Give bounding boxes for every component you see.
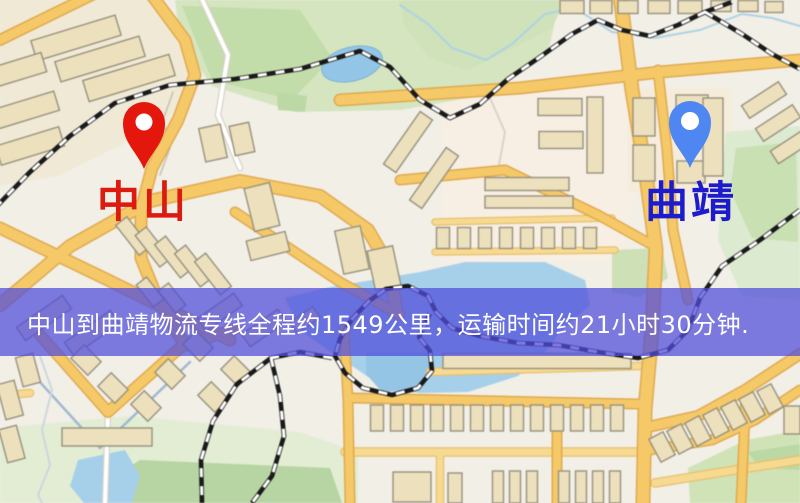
map-canvas[interactable]: 中山 曲靖 [0,0,800,503]
banner-text: 中山到曲靖物流专线全程约1549公里，运输时间约21小时30分钟. [27,305,749,340]
map-screenshot: 中山 曲靖 中山到曲靖物流专线全程约1549公里，运输时间约21小时30分钟. [0,0,800,503]
origin-pin-hole [136,114,153,131]
destination-label: 曲靖 [645,178,737,228]
info-banner: 中山到曲靖物流专线全程约1549公里，运输时间约21小时30分钟. [0,288,800,356]
origin-label: 中山 [97,178,189,228]
destination-pin-hole [681,112,699,130]
